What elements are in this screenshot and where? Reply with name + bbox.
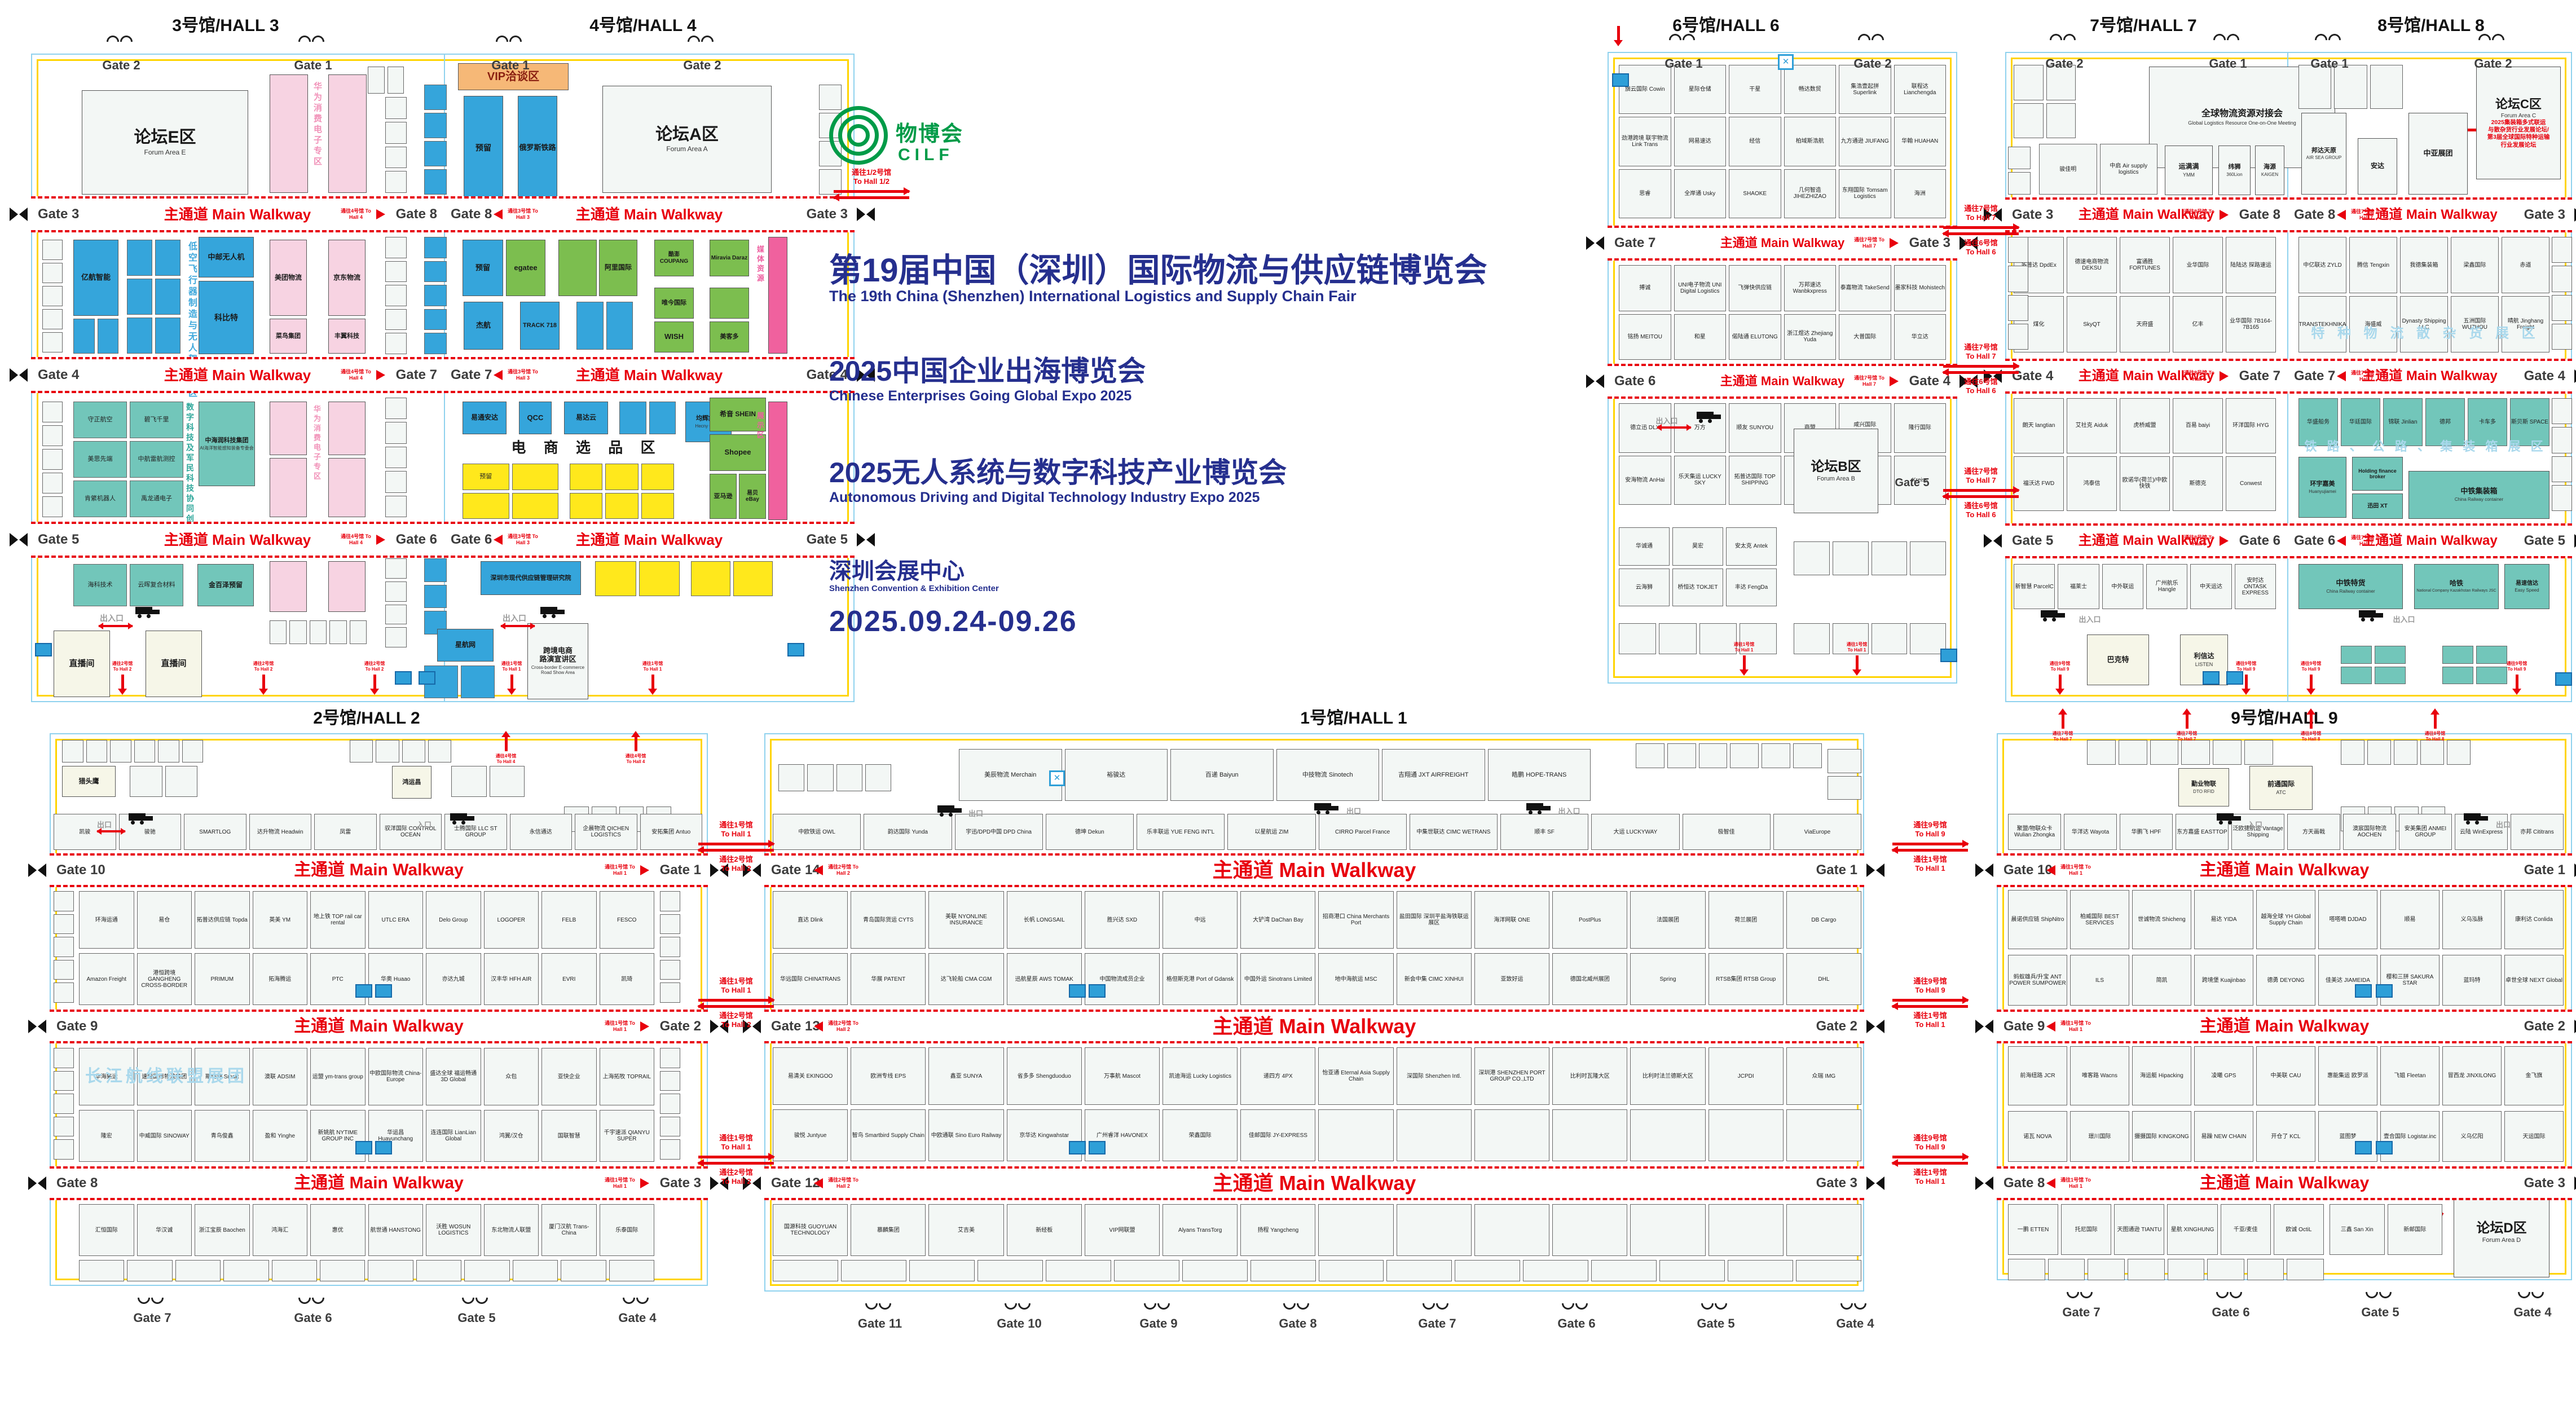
zone-label: 中邮无人机 — [208, 253, 244, 262]
booth-cell-empty — [2014, 103, 2044, 139]
booth-cell-empty — [134, 740, 156, 763]
booth-cell-empty — [54, 937, 74, 957]
booth-grid — [1636, 743, 1822, 768]
booth-cell: 义乌泓脉 — [2442, 890, 2502, 949]
logo-text-cn: 物博会 — [896, 116, 963, 147]
booth-cell: 三鑫 San Xin — [2330, 1204, 2385, 1255]
main-walkway-label: 主通道 Main Walkway — [294, 1166, 464, 1200]
zone-酷澎-COUPANG: 酷澎 COUPANG — [654, 240, 694, 276]
arrow-left-icon — [1892, 1005, 1968, 1008]
booth-cell-empty — [424, 169, 447, 195]
connector-note-line: 通往6号馆 — [1939, 501, 2023, 510]
arrow-left-icon — [698, 849, 774, 852]
connector-mini-label-line: To Hall 2 — [359, 667, 390, 672]
booth-cell: 德勇 DEYONG — [2256, 955, 2315, 1006]
red-down-arrow-icon — [2310, 675, 2313, 689]
zone-label: egatee — [514, 264, 537, 272]
gate-arch-icon — [2216, 1286, 2245, 1299]
booth-grid — [1828, 749, 1861, 800]
truck-icon — [2464, 811, 2490, 826]
two-way-arrow-icon — [501, 625, 535, 627]
arrow-right-icon — [698, 999, 774, 1002]
booth-cell-empty — [385, 605, 407, 625]
connector-mini-label-line: 通往7号馆 — [2047, 731, 2079, 737]
booth-cell: 凯迪海运 Lucky Logistics — [1162, 1047, 1238, 1105]
booth-cell: 中航雷航测控 — [130, 441, 183, 478]
gate-label: Gate 6 — [1614, 364, 1655, 399]
booth-cell-empty — [385, 398, 407, 419]
booth-cell-empty — [595, 561, 636, 596]
truck-icon — [2217, 811, 2243, 826]
gate-label: Gate 5 — [2524, 523, 2565, 558]
booth-cell-empty — [463, 493, 509, 519]
booth-cell: 天运国际 — [2504, 1111, 2564, 1162]
booth-grid — [778, 764, 891, 791]
booth-cell: 中集世联达 CIMC WETRANS — [1410, 814, 1498, 850]
booth-cell: 安海物流 AnHai — [1619, 456, 1671, 505]
gate-label: Gate 8 — [396, 196, 437, 232]
zone-label: 论坛A区 — [655, 125, 719, 145]
zone-label: 全球物流资源对接会 — [2201, 109, 2283, 119]
booth-cell: 托尼国际 — [2061, 1204, 2111, 1255]
connector-mini-label-line: 通往1号馆 — [496, 661, 527, 667]
booth-cell: DHL — [1786, 953, 1861, 1005]
booth-cell: 华汉诚 — [137, 1204, 192, 1256]
gate-label: Gate 6 — [396, 522, 437, 558]
connector-mini-label-line: 通往8号馆 — [2295, 731, 2327, 737]
entrance-box-icon — [1069, 1141, 1086, 1154]
booth-cell: 搏诚 — [1619, 265, 1671, 311]
connector-mini-label-line: 通往1号馆 — [1841, 642, 1873, 647]
two-way-arrow-icon — [97, 830, 125, 832]
booth-cell: 诺瓦 NOVA — [2008, 1111, 2067, 1162]
booth-cell: 德速电商物流 DEKSU — [2067, 237, 2117, 293]
booth-cell: SHAOKE — [1729, 169, 1781, 218]
booth-cell: 盈和 Yinghe — [253, 1110, 308, 1162]
booth-cell-empty — [350, 740, 373, 763]
booth-cell-empty — [1659, 623, 1696, 654]
booth-cell-empty — [2552, 324, 2572, 350]
booth-cell: 汉丰华 HFH AIR — [484, 953, 539, 1005]
booth-cell: 众瑞 IMG — [1786, 1047, 1861, 1105]
booth-cell-empty — [42, 332, 63, 352]
booth-cell: EVRI — [541, 953, 597, 1005]
walkway-direction-note: 通往1号馆 To Hall 1 — [602, 864, 649, 876]
booth-cell: 劲港跨境 联宇物流 Link Trans — [1619, 117, 1671, 166]
connector-mini-label-line: To Hall 7 — [2171, 737, 2203, 742]
booth-cell: 英美 YM — [253, 891, 308, 949]
entrance-box-icon — [2555, 672, 2572, 686]
zone-label: 中亚展团 — [2423, 149, 2452, 158]
connector-note-line: 通往7号馆 — [1939, 467, 2023, 476]
booth-grid — [368, 67, 404, 94]
gate-arch-icon — [298, 36, 328, 49]
booth-cell-empty — [42, 425, 63, 446]
booth-cell-empty — [1397, 1109, 1472, 1161]
booth-cell-empty — [649, 402, 676, 434]
zone-label: 直播间 — [69, 659, 94, 668]
booth-cell-empty — [660, 937, 680, 957]
booth-grid: 朗天 langtian艾社克 Aiduk虎桥威盟百易 baiyi环洋国际 HYG… — [2014, 398, 2276, 511]
booth-cell: 泰嘉物流 TakeSend — [1839, 265, 1891, 311]
booth-cell: 腾信 Tengxin — [2349, 237, 2397, 293]
booth-cell-empty — [289, 620, 306, 644]
booth-cell-empty — [2375, 646, 2406, 664]
entrance-box-icon — [2376, 984, 2393, 998]
booth-cell: 裕骏达 — [1065, 749, 1168, 801]
zone-美团物流: 美团物流 — [270, 240, 307, 316]
booth-grid: 华诚通昊宏安太克 Antek云海狮桥恒达 TOKJET丰达 FengDa — [1619, 527, 1777, 606]
booth-cell-empty — [155, 318, 180, 354]
connector-mini-label-line: 通往4号馆 — [620, 753, 651, 759]
booth-cell: 比利时法兰德斯大区 — [1630, 1047, 1705, 1105]
red-down-arrow-icon — [2059, 675, 2062, 689]
booth-cell: 跨境堡 Kuajinbao — [2194, 955, 2253, 1006]
revolving-door-icon — [28, 1019, 47, 1034]
booth-cell-empty — [54, 982, 74, 1003]
booth-grid — [2341, 646, 2406, 684]
zone-sublabel: Easy Speed — [2515, 588, 2539, 593]
booth-cell: 企晨物流 QICHEN LOGISTICS — [575, 814, 637, 850]
booth-cell: 澳宸国际物流 AOCHEN — [2343, 814, 2396, 850]
connector-mini-label: 通往1号馆To Hall 1 — [1728, 642, 1760, 653]
gate-label: Gate 2 — [683, 58, 721, 73]
booth-grid — [2008, 1259, 2324, 1280]
booth-cell-empty — [270, 620, 287, 644]
booth-cell: 以星航运 ZIM — [1227, 814, 1315, 850]
revolving-door-icon — [28, 863, 47, 878]
booth-cell: 中欧通联 Sino Euro Railway — [928, 1109, 1003, 1161]
connector-mini-label-line: To Hall 1 — [1728, 647, 1760, 653]
vertical-zone-label: 媒体资源 — [755, 245, 765, 347]
walkway-direction-note: 通往8号馆 To Hall 8 — [2181, 370, 2229, 382]
booth-cell: 德坤 Dekun — [1046, 814, 1134, 850]
connector-mini-label-line: To Hall 1 — [637, 667, 668, 672]
zone-哈铁: 哈铁National Company Kazakhstan Railways J… — [2414, 564, 2499, 609]
vertical-zone-label: 低空飞行器制造与无人驾驶专区 — [184, 241, 198, 354]
booth-cell-empty — [424, 333, 447, 354]
booth-cell: 中威国际 SINOWAY — [137, 1110, 192, 1162]
cilf-logo: 物博会 CILF — [829, 102, 1010, 186]
hall-connector-note: 通往1号馆To Hall 1通往2号馆To Hall 2 — [694, 977, 778, 1029]
walkway-direction-note: 通往4号馆 To Hall 4 — [338, 369, 385, 381]
forum-note-line: 行业发展论坛 — [2501, 142, 2537, 149]
main-title-en: The 19th China (Shenzhen) International … — [829, 288, 1357, 305]
booth-cell: 环洋国际 HYG — [2226, 398, 2276, 453]
booth-cell: 海科技术 — [73, 564, 127, 606]
gate-arch-icon — [1283, 1297, 1313, 1311]
zone-label: 京东物流 — [333, 274, 360, 282]
booth-cell-empty — [1114, 1260, 1179, 1281]
booth-cell: 惠优 — [310, 1204, 366, 1256]
booth-cell: 安美集团 ANMEI GROUP — [2399, 814, 2452, 850]
booth-cell-empty — [2008, 147, 2031, 169]
booth-block — [328, 402, 366, 455]
gate-label: Gate 2 — [2524, 1010, 2565, 1043]
event-header: 物博会 CILF 第19届中国（深圳）国际物流与供应链博览会 The 19th … — [829, 102, 1568, 711]
booth-grid — [595, 561, 680, 596]
map-label: 出入口 — [2393, 614, 2415, 624]
booth-cell: 易躁 NEW CHAIN — [2194, 1111, 2253, 1162]
booth-cell-empty — [2168, 1259, 2205, 1280]
zone-label: 利信达 — [2194, 653, 2214, 660]
booth-cell: 偌陆通 ELUTONG — [1729, 314, 1781, 360]
main-walkway-label: 主通道 Main Walkway — [2200, 1166, 2370, 1200]
booth-cell: SMARTLOG — [184, 814, 246, 850]
booth-cell: 新经板 — [1007, 1204, 1082, 1256]
booth-cell: 新邮国际 — [2388, 1204, 2443, 1255]
booth-cell: 顺易 — [2380, 890, 2440, 949]
zone-label: 美团物流 — [275, 274, 302, 282]
zone-label: 星航网 — [455, 641, 475, 649]
connector-note-line: 通往9号馆 — [1888, 1134, 1972, 1143]
zone-sublabel: Forum Area E — [144, 149, 186, 157]
zone-Holding-finance-broker: Holding finance broker — [2352, 457, 2403, 491]
booth-cell: 蓝玛特 — [2442, 955, 2502, 1006]
zone-纬狮: 纬狮360Lion — [2218, 146, 2251, 195]
gate-label: Gate 7 — [1614, 226, 1655, 261]
gate-label: Gate 6 — [294, 1311, 332, 1325]
booth-cell: 卓世全球 NEXT Global — [2504, 955, 2564, 1006]
walkway-direction-note: 通往7号馆 To Hall 7 — [2337, 535, 2384, 547]
connector-mini-label-line: 通往8号馆 — [2419, 731, 2451, 737]
booth-cell: 联程达 Lianchengda — [1894, 65, 1947, 114]
entrance-box-icon — [419, 671, 435, 685]
booth-cell: 华洋达 Wayota — [2064, 814, 2117, 850]
booth-cell-empty — [54, 1139, 74, 1160]
booth-cell: RTSB集团 RTSB Group — [1708, 953, 1784, 1005]
arrow-left-icon — [1943, 371, 2019, 374]
booth-cell: 亚快企业 — [541, 1048, 597, 1105]
zone-中亚展团: 中亚展团 — [2408, 113, 2468, 195]
zone-label: WISH — [664, 333, 684, 341]
walkway-direction-note: 通往7号馆 To Hall 7 — [2337, 209, 2384, 221]
booth-cell-empty — [570, 493, 602, 519]
walkway-direction-note: 通往1号馆 To Hall 1 — [2046, 1020, 2094, 1033]
gate-label: Gate 7 — [396, 357, 437, 393]
booth-cell-empty — [1872, 541, 1908, 575]
zone-鸿运昌: 鸿运昌 — [392, 766, 431, 799]
booth-cell-empty — [54, 1094, 74, 1114]
zone-论坛E区: 论坛E区Forum Area E — [82, 90, 248, 195]
gate-arch-icon — [1562, 1297, 1591, 1311]
zone-label: Miravia Daraz — [711, 255, 747, 262]
zone-label: 酷澎 COUPANG — [655, 252, 693, 265]
hall-connector-note: 通往1号馆To Hall 1通往2号馆To Hall 2 — [694, 1134, 778, 1186]
zone-sublabel: YMM — [2183, 172, 2195, 178]
booth-cell-empty — [2119, 740, 2147, 765]
arrow-right-icon — [698, 1156, 774, 1158]
booth-cell-empty — [2341, 667, 2372, 685]
connector-note-line: To Hall 1 — [694, 986, 778, 995]
zone-label: 路演宣讲区 — [539, 655, 576, 664]
booth-cell-empty — [127, 240, 152, 276]
booth-cell: 亦达九城 — [426, 953, 481, 1005]
zone-label: 哈铁 — [2450, 580, 2463, 588]
booth-cell: 朗天 langtian — [2014, 398, 2064, 453]
booth-cell-empty — [2552, 266, 2572, 292]
connector-note-line: 通往7号馆 — [1939, 204, 2023, 213]
gate-label: Gate 1 — [1665, 56, 1702, 71]
booth-cell: 亿丰 — [2173, 296, 2223, 352]
gate-label: Gate 4 — [38, 357, 79, 393]
booth-cell-empty — [368, 1260, 413, 1281]
booth-cell-empty — [1793, 743, 1822, 768]
red-up-arrow-icon — [2434, 714, 2437, 729]
connector-note-line: To Hall 9 — [1888, 986, 1972, 995]
booth-cell: 简凯 — [2132, 955, 2191, 1006]
main-walkway-band — [31, 196, 855, 232]
booth-cell: 蚂蚁雄兵/升宝 ANT POWER SUMPOWER — [2008, 955, 2067, 1006]
zone-label: 纬狮 — [2229, 164, 2241, 171]
zone-label: 跨境电商 — [543, 647, 573, 655]
booth-cell-empty — [1794, 623, 1830, 654]
booth-cell-empty — [86, 740, 108, 763]
booth-cell: 中天运达 — [2190, 564, 2231, 609]
booth-grid: 前海纽路 JCR唯客路 Wacns海运艇 Hipacking凌曦 GPS中美联 … — [2008, 1046, 2564, 1105]
connector-mini-label-line: 通往2号馆 — [107, 661, 138, 667]
walkway-direction-note: 通往7号馆 To Hall 7 — [2337, 370, 2384, 382]
booth-cell-empty — [2046, 103, 2076, 139]
booth-cell-empty — [387, 67, 404, 94]
gate-arch-icon — [2478, 34, 2508, 47]
booth-cell-empty — [2287, 1259, 2324, 1280]
booth-grid — [773, 1260, 1861, 1281]
gate-label: Gate 10 — [56, 853, 105, 887]
booth-cell-empty — [2442, 646, 2473, 664]
red-down-arrow-icon — [1617, 26, 1620, 41]
zone-label: 深圳市现代供应链管理研究院 — [491, 575, 571, 582]
zone-中海润科技集团: 中海润科技集团AI海洋智能感知装备专委会 — [199, 402, 255, 486]
venue-en: Shenzhen Convention & Exhibition Center — [829, 584, 999, 593]
expo2-title-en: Chinese Enterprises Going Global Expo 20… — [829, 388, 1131, 404]
booth-cell-empty — [42, 263, 63, 283]
truck-icon — [129, 811, 155, 826]
booth-cell-empty — [42, 309, 63, 329]
booth-grid: 一鹏 ETTEN托尼国际天图通逊 TIANTU星航 XINGHUNG千亚/麦佳欧… — [2008, 1204, 2324, 1255]
booth-cell: 桥恒达 TOKJET — [1672, 569, 1723, 607]
truck-icon — [2041, 608, 2067, 623]
booth-cell-empty — [130, 766, 162, 797]
booth-cell: 欧诺华(荷兰)/中欧快铁 — [2120, 456, 2170, 512]
booth-cell-empty — [424, 558, 447, 582]
booth-cell-empty — [1730, 743, 1759, 768]
zone-安达: 安达 — [2358, 138, 2397, 195]
logo-ring-inner — [847, 124, 870, 147]
booth-cell: 乐天集运 LUCKY SKY — [1674, 456, 1727, 505]
booth-cell: 招商港口 China Merchants Port — [1318, 891, 1393, 949]
booth-grid — [130, 766, 197, 797]
hall-3-4-title: 3号馆/HALL 3 — [172, 11, 279, 36]
booth-cell-empty — [641, 464, 674, 490]
red-up-arrow-icon — [2062, 714, 2064, 729]
booth-cell-empty — [385, 581, 407, 602]
booth-cell-empty — [1250, 1260, 1316, 1281]
booth-cell-empty — [1552, 1109, 1627, 1161]
booth-grid: 骏佳明中启 Air supply logistics — [2039, 144, 2157, 195]
booth-cell: 天府盛 — [2120, 296, 2170, 352]
gate-label: Gate 4 — [1836, 1316, 1874, 1331]
booth-cell: 德国北威州展团 — [1552, 953, 1627, 1005]
booth-cell-empty — [1708, 1204, 1784, 1256]
entrance-box-icon — [355, 984, 372, 998]
booth-grid — [62, 740, 203, 763]
booth-cell: 众包 — [484, 1048, 539, 1105]
gate-arch-icon — [1005, 1297, 1034, 1311]
gate-arch-icon — [2518, 1286, 2547, 1299]
booth-cell: 陆陆达 探路速运 — [2226, 237, 2276, 293]
gate-label: Gate 9 — [2003, 1010, 2045, 1043]
booth-grid — [1794, 541, 1946, 575]
booth-cell-empty — [660, 1071, 680, 1091]
zone-运满满: 运满满YMM — [2165, 146, 2213, 195]
zone-label: 邦达天原 — [2311, 147, 2336, 155]
booth-grid — [451, 766, 525, 797]
booth-cell: 青岛国际货运 CYTS — [851, 891, 926, 949]
booth-grid: 易清关 EKINGOO欧洲专线 EPS鑫亚 SUNYA省多多 Shengduod… — [773, 1047, 1861, 1105]
booth-cell: 美辰物流 Merchain — [959, 749, 1062, 801]
zone-label: 易通安达 — [471, 414, 498, 422]
booth-cell: 佳美达 JIAMEIDA — [2318, 955, 2377, 1006]
booth-block — [768, 402, 787, 520]
booth-cell-empty — [54, 1117, 74, 1137]
booth-cell: 百递 Baiyun — [1170, 749, 1274, 801]
entrance-box-icon — [375, 984, 392, 998]
connector-mini-label-line: To Hall 9 — [2295, 667, 2327, 672]
gate-arch-icon — [865, 1297, 895, 1311]
connector-mini-label: 通往8号馆To Hall 8 — [2295, 731, 2327, 742]
booth-cell-empty — [320, 1260, 365, 1281]
entrance-box-icon — [2203, 671, 2220, 685]
entrance-box-icon — [1089, 1141, 1106, 1154]
connector-note-line: 通往6号馆 — [1939, 239, 2023, 248]
booth-block — [270, 402, 307, 455]
booth-cell: FELB — [541, 891, 597, 949]
connector-mini-label-line: To Hall 9 — [2044, 667, 2076, 672]
booth-grid — [2341, 740, 2471, 765]
vertical-zone-label: 展示区 — [755, 412, 765, 502]
booth-cell-empty — [1786, 1109, 1861, 1161]
walkway-direction-note: 通往3号馆 To Hall 3 — [494, 534, 541, 546]
elevator-icon: ✕ — [1778, 54, 1794, 70]
gate-label: Gate 5 — [2361, 1305, 2399, 1320]
zone-易通安达: 易通安达 — [463, 402, 507, 434]
booth-cell-empty — [1699, 743, 1728, 768]
booth-cell-empty — [660, 960, 680, 980]
booth-cell-empty — [158, 740, 179, 763]
hall-6-title: 6号馆/HALL 6 — [1672, 11, 1779, 36]
booth-cell: Delo Group — [426, 891, 481, 949]
gate-arch-icon — [496, 36, 525, 49]
booth-cell: Alyans TransTorg — [1162, 1204, 1238, 1256]
zone-QCC: QCC — [519, 402, 552, 434]
zone-banner-label: 电 商 选 品 区 — [512, 437, 662, 457]
zone-易速信达: 易速信达Easy Speed — [2504, 564, 2549, 609]
connector-mini-label-line: 通往4号馆 — [490, 753, 522, 759]
revolving-door-icon — [1586, 236, 1605, 250]
connector-note-line: To Hall 6 — [1939, 248, 2023, 257]
booth-cell: LOGOPER — [484, 891, 539, 949]
booth-cell-empty — [98, 319, 119, 354]
booth-cell: 航世通 HANSTONG — [368, 1204, 424, 1256]
booth-cell-empty — [385, 237, 407, 258]
zone-星航网: 星航网 — [437, 629, 494, 662]
gate-label: Gate 2 — [102, 58, 140, 73]
booth-grid: 汇恒国际华汉诚浙江宝辰 Baochen鸿海汇惠优航世通 HANSTONG沃胜 W… — [79, 1204, 654, 1256]
booth-cell-empty — [2552, 485, 2572, 511]
booth-cell-empty — [2552, 427, 2572, 453]
event-dates: 2025.09.24-09.26 — [829, 605, 1077, 638]
